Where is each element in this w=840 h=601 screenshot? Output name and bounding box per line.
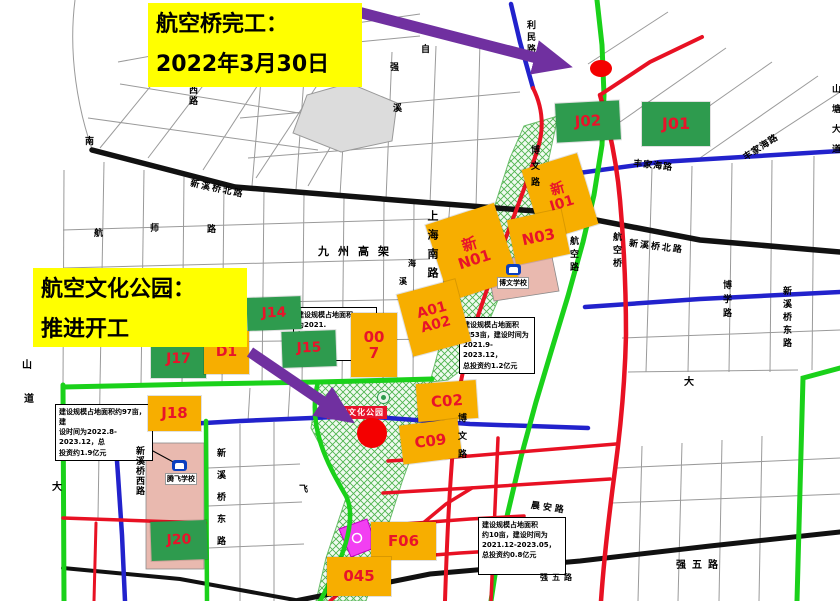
callout-bridge-complete: 航空桥完工： 2022年3月30日 <box>148 3 362 87</box>
planning-map: 建设规模占地面积 为2021. 亿元建设规模占地面积 约53亩，建设时间为 20… <box>0 0 840 601</box>
callout-park-start: 航空文化公园： 推进开工 <box>33 268 247 347</box>
park-arrow <box>250 352 344 416</box>
bridge-arrow <box>358 12 560 64</box>
callout-bridge-line1: 航空桥完工： <box>156 5 354 45</box>
callout-park-line1: 航空文化公园： <box>41 270 239 310</box>
callout-park-line2: 推进开工 <box>41 310 239 350</box>
callout-bridge-line2: 2022年3月30日 <box>156 45 354 85</box>
